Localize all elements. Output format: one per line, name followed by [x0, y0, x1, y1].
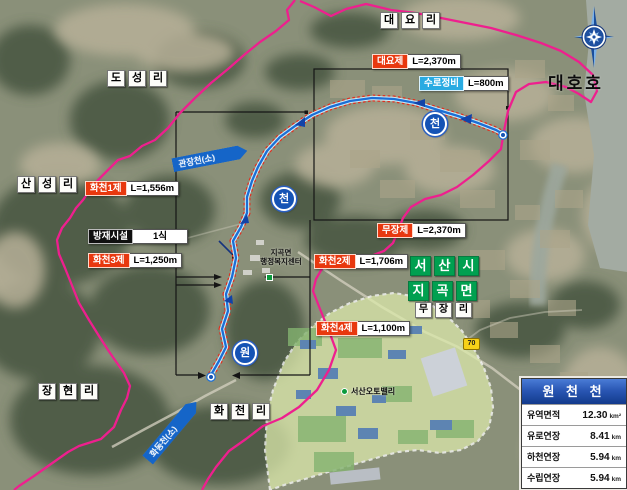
measure-label-hwacheon-4: 화천4제L=1,100m	[316, 321, 410, 336]
measure-value: L=1,556m	[127, 181, 180, 196]
measure-name: 대요제	[372, 54, 408, 69]
info-table-row: 하천연장5.94km	[522, 446, 626, 467]
place-char-box: 요	[401, 12, 419, 29]
info-row-label: 수립연장	[527, 468, 560, 488]
measure-value: L=1,100m	[358, 321, 411, 336]
measure-name: 화천1제	[85, 181, 127, 196]
place-char-box: 무	[415, 302, 432, 318]
measure-name: 화천2제	[314, 254, 356, 269]
compass-rose	[568, 4, 620, 70]
place-label-seosan-si: 서산시	[410, 256, 479, 276]
place-char-box: 현	[59, 383, 77, 400]
place-char-box: 리	[422, 12, 440, 29]
place-char-box: 화	[210, 403, 228, 420]
place-char-box: 산	[434, 256, 455, 276]
info-table-row: 유로연장8.41km	[522, 425, 626, 446]
place-char-box: 곡	[432, 281, 453, 301]
info-row-value: 5.94	[590, 469, 609, 489]
info-row-unit: km²	[609, 413, 621, 420]
admin-center-marker	[266, 274, 273, 281]
river-plan-map: 대호호 대요리도성리산성리장현리화천리서산시지곡면무장리 대요제L=2,370m…	[0, 0, 627, 490]
measure-label-hwacheon-3: 화천3제L=1,250m	[88, 253, 182, 268]
place-char-box: 리	[252, 403, 270, 420]
place-char-box: 도	[107, 70, 125, 87]
place-char-box: 리	[455, 302, 472, 318]
measure-name: 화천3제	[88, 253, 130, 268]
place-label-sanseong-ri: 산성리	[17, 176, 77, 193]
place-label-mujang-ri: 무장리	[415, 302, 472, 318]
info-row-value: 12.30	[582, 406, 607, 426]
place-label-hwacheon-ri: 화천리	[210, 403, 270, 420]
measure-value: L=2,370m	[413, 223, 466, 238]
info-table-rows: 유역면적12.30km²유로연장8.41km하천연장5.94km수립연장5.94…	[522, 404, 626, 488]
measure-label-bangjae-sisol: 방재시설1식	[88, 229, 188, 244]
place-char-box: 성	[128, 70, 146, 87]
auto-valley-text: 서산오토밸리	[351, 386, 395, 397]
place-char-box: 리	[149, 70, 167, 87]
measure-value: 1식	[133, 229, 188, 244]
place-char-box: 장	[435, 302, 452, 318]
info-table-row: 유역면적12.30km²	[522, 404, 626, 425]
place-char-box: 리	[59, 176, 77, 193]
place-char-box: 천	[231, 403, 249, 420]
measure-name: 무장제	[377, 223, 413, 238]
place-label-jigok-myeon: 지곡면	[408, 281, 477, 301]
stream-badge-won-south: 원	[233, 341, 257, 365]
place-char-box: 리	[80, 383, 98, 400]
measure-value: L=800m	[464, 76, 509, 91]
measure-value: L=2,370m	[408, 54, 461, 69]
lake-label-daehoho: 대호호	[548, 69, 604, 94]
measure-name: 수로정비	[419, 76, 464, 91]
auto-valley-label: 서산오토밸리	[341, 386, 395, 397]
info-row-label: 유로연장	[527, 426, 560, 446]
admin-center-label: 지곡면 행정복지센터	[252, 248, 310, 266]
place-char-box: 대	[380, 12, 398, 29]
place-label-daeyo-ri: 대요리	[380, 12, 440, 29]
place-char-box: 장	[38, 383, 56, 400]
info-row-unit: km	[612, 476, 621, 483]
info-row-label: 하천연장	[527, 447, 560, 467]
info-row-unit: km	[612, 455, 621, 462]
measure-label-suro-jeongbi: 수로정비L=800m	[419, 76, 509, 91]
route-70-badge: 70	[463, 338, 480, 350]
info-table-title: 원 천 천	[522, 379, 626, 404]
measure-label-mujang-je: 무장제L=2,370m	[377, 223, 466, 238]
measure-label-hwacheon-2: 화천2제L=1,706m	[314, 254, 408, 269]
measure-name: 화천4제	[316, 321, 358, 336]
stream-badge-cheon-east: 천	[423, 112, 447, 136]
place-char-box: 산	[17, 176, 35, 193]
place-label-doseong-ri: 도성리	[107, 70, 167, 87]
place-char-box: 면	[456, 281, 477, 301]
admin-center-line1: 지곡면	[252, 248, 310, 257]
measure-value: L=1,250m	[130, 253, 183, 268]
measure-label-daeyo-je: 대요제L=2,370m	[372, 54, 461, 69]
stream-badge-cheon-mid: 천	[272, 187, 296, 211]
measure-label-hwacheon-1: 화천1제L=1,556m	[85, 181, 179, 196]
place-char-box: 시	[458, 256, 479, 276]
info-row-label: 유역면적	[527, 405, 560, 425]
stream-info-table: 원 천 천 유역면적12.30km²유로연장8.41km하천연장5.94km수립…	[521, 378, 627, 489]
place-char-box: 성	[38, 176, 56, 193]
measure-name: 방재시설	[88, 229, 133, 244]
place-label-janghyeon-ri: 장현리	[38, 383, 98, 400]
place-char-box: 지	[408, 281, 429, 301]
info-row-value: 5.94	[590, 448, 609, 468]
measure-value: L=1,706m	[356, 254, 409, 269]
admin-center-line2: 행정복지센터	[252, 257, 310, 266]
place-char-box: 서	[410, 256, 431, 276]
auto-valley-marker-icon	[341, 388, 348, 395]
info-row-unit: km	[612, 434, 621, 441]
info-row-value: 8.41	[590, 427, 609, 447]
info-table-row: 수립연장5.94km	[522, 467, 626, 488]
